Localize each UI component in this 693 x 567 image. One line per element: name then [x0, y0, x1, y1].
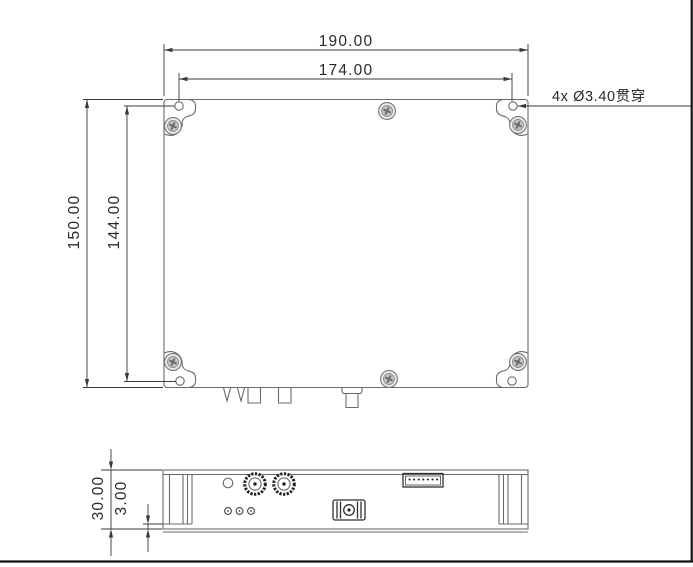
corner-detail-bottom-left: [165, 352, 196, 388]
engineering-drawing: 190.00 174.00 150.00 144.00 4x Ø3.40贯穿: [0, 0, 693, 567]
dim-label-150: 150.00: [66, 195, 83, 250]
antenna-pin-2: [238, 388, 245, 401]
sma-connector-1: [245, 474, 266, 495]
drawing-sheet: 190.00 174.00 150.00 144.00 4x Ø3.40贯穿: [0, 0, 693, 567]
indicator-led-3: [248, 508, 255, 515]
mounting-hole-bottom-right: [508, 377, 516, 385]
indicator-led-2: [236, 508, 243, 515]
panel-hole: [223, 478, 233, 488]
dim-label-174: 174.00: [319, 62, 374, 79]
screw-top-right: [510, 117, 527, 134]
enclosure-top-outline: [164, 100, 528, 388]
dim-174: 174.00: [179, 62, 512, 101]
corner-detail-bottom-right: [497, 352, 528, 388]
dc-power-jack: [333, 500, 365, 520]
bottom-edge-connectors: [224, 388, 363, 408]
indicator-led-1: [225, 508, 232, 515]
screw-top-center: [379, 103, 396, 120]
screw-bottom-left: [165, 354, 182, 371]
mounting-hole-top-right: [509, 102, 517, 110]
dim-3: 3.00: [113, 481, 163, 552]
screw-top-left: [165, 118, 182, 135]
hole-callout: 4x Ø3.40贯穿: [518, 88, 692, 108]
tab-connector-1: [248, 388, 261, 403]
mounting-hole-top-left: [175, 102, 183, 110]
dim-label-30: 30.00: [90, 476, 107, 521]
left-flange: [163, 475, 192, 525]
dim-144: 144.00: [106, 106, 176, 382]
jack-boss: [342, 388, 362, 394]
right-flange: [499, 475, 528, 525]
side-view: [163, 470, 528, 532]
pin-header-connector: [403, 474, 443, 488]
screw-bottom-center: [381, 371, 398, 388]
dim-label-144: 144.00: [106, 195, 123, 250]
corner-detail-top-left: [165, 100, 196, 136]
dim-label-190: 190.00: [319, 33, 374, 50]
screw-bottom-right: [510, 354, 527, 371]
top-view: [164, 100, 528, 408]
hole-note-label: 4x Ø3.40贯穿: [552, 88, 646, 105]
antenna-pin-1: [224, 388, 231, 401]
jack-tab: [346, 394, 358, 408]
mounting-hole-bottom-left: [176, 377, 184, 385]
dim-label-3: 3.00: [113, 481, 130, 516]
tab-connector-2: [279, 388, 292, 403]
sma-connector-2: [274, 474, 295, 495]
